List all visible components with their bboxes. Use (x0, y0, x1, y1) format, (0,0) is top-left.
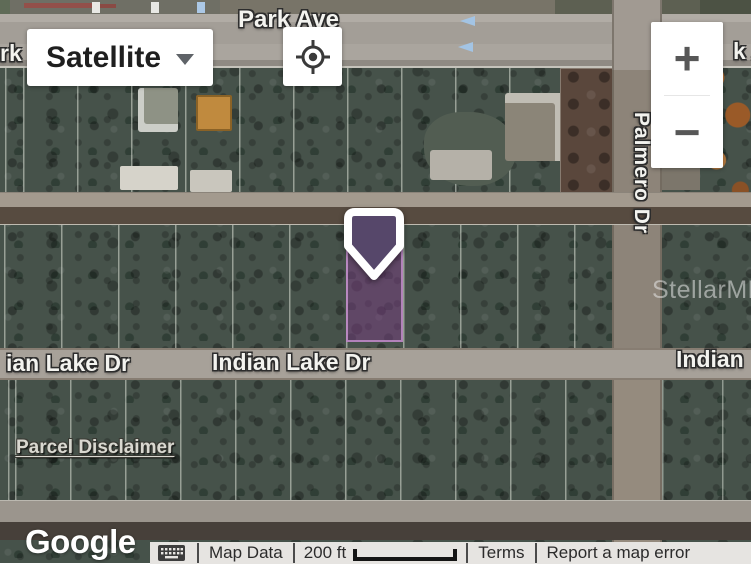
stellar-mls-watermark: StellarMLS (652, 276, 751, 305)
street-label-indian-lake-partial: ian Lake Dr (6, 350, 130, 377)
street-label-indian-lake: Indian Lake Dr (212, 349, 370, 376)
road-marking (197, 2, 205, 13)
house (505, 93, 563, 161)
parcel-grid-right (662, 380, 751, 500)
bottom-road (0, 500, 751, 522)
parcel-grid-mid (0, 225, 612, 348)
map-page: Park Ave rk k A Palmero Dr ian Lake Dr I… (0, 0, 751, 577)
structure (190, 170, 232, 192)
terms-link[interactable]: Terms (478, 543, 524, 563)
zoom-control: + − (651, 22, 723, 168)
street-label-park-ave-partial: rk (0, 40, 22, 67)
my-location-button[interactable] (283, 27, 342, 86)
house (138, 88, 178, 132)
street-label-palmero-dr: Palmero Dr (629, 112, 653, 234)
structure (120, 166, 178, 190)
separator (535, 543, 537, 563)
house (196, 95, 232, 131)
traffic-arrow-icon (460, 16, 475, 26)
street-label-indian-partial: Indian (676, 346, 744, 373)
separator (466, 543, 468, 563)
attribution-bar: Map Data 200 ft Terms Report a map error (150, 542, 751, 564)
house (430, 150, 492, 180)
scale-bar (353, 549, 457, 561)
google-logo[interactable]: Google (25, 523, 136, 561)
map-type-button[interactable]: Satellite (27, 29, 213, 86)
zoom-in-button[interactable]: + (651, 22, 723, 95)
separator (197, 543, 199, 563)
map-type-label: Satellite (46, 41, 161, 75)
traffic-arrow-icon (458, 42, 473, 52)
report-map-error-link[interactable]: Report a map error (547, 543, 691, 563)
street-label-right-partial: k A (733, 38, 751, 65)
road-marking (24, 3, 94, 8)
road-marking (100, 4, 116, 8)
pin-shape (348, 212, 400, 276)
zoom-out-button[interactable]: − (651, 96, 723, 169)
road-marking (92, 2, 100, 13)
scale-label: 200 ft (304, 543, 347, 563)
map-marker-pin[interactable] (342, 206, 406, 284)
crosshair-location-icon (295, 39, 331, 75)
keyboard-shortcuts-button[interactable] (158, 545, 185, 561)
separator (293, 543, 295, 563)
satellite-map[interactable]: Park Ave rk k A Palmero Dr ian Lake Dr I… (0, 0, 751, 563)
scale-control: 200 ft (304, 543, 458, 563)
map-data-label: Map Data (209, 543, 283, 563)
keyboard-icon (158, 545, 185, 561)
parcel-disclaimer-link[interactable]: Parcel Disclaimer (16, 437, 174, 459)
road-marking (151, 2, 159, 13)
chevron-down-icon (176, 54, 194, 65)
